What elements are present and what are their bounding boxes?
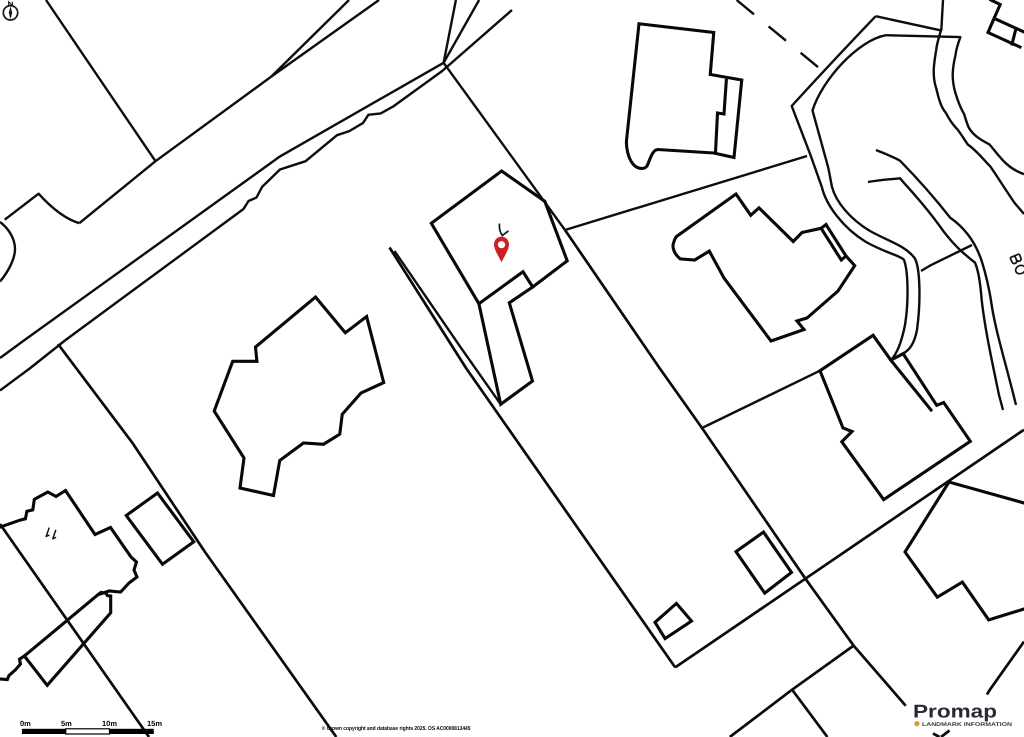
svg-text:Promap: Promap: [913, 701, 997, 722]
svg-text:5m: 5m: [61, 719, 72, 728]
svg-text:© Crown copyright and database: © Crown copyright and database rights 20…: [322, 725, 471, 732]
svg-text:10m: 10m: [102, 719, 117, 728]
svg-text:LANDMARK INFORMATION: LANDMARK INFORMATION: [922, 722, 1012, 728]
svg-text:0m: 0m: [20, 719, 31, 728]
svg-text:15m: 15m: [147, 719, 162, 728]
